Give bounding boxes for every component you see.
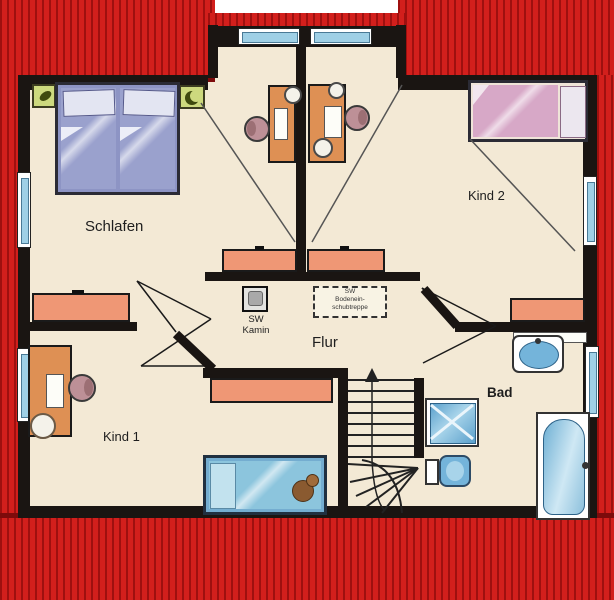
room-label-bad: Bad xyxy=(487,385,513,400)
wall-stairs-right xyxy=(414,378,424,458)
chimney-label-line1: SW xyxy=(248,314,263,325)
wall-bad-top xyxy=(455,322,597,332)
basin-tap xyxy=(535,338,541,344)
office-chair xyxy=(68,374,96,402)
office-chair xyxy=(244,116,270,142)
wall-flur-top xyxy=(205,272,420,281)
room-label-kind2: Kind 2 xyxy=(468,188,505,203)
attic-hatch-line1: SW xyxy=(345,288,355,295)
lamp-symbol-cut xyxy=(190,90,202,102)
desk-paper xyxy=(324,106,342,138)
single-bed-kind1 xyxy=(203,455,327,515)
room-label-kind1: Kind 1 xyxy=(103,429,140,444)
desk-paper xyxy=(274,108,288,140)
pillow xyxy=(63,89,116,117)
chimney-flue xyxy=(248,291,263,306)
roof-left-strip xyxy=(0,75,18,518)
room-label-flur: Flur xyxy=(312,334,338,351)
pillow xyxy=(123,89,176,117)
toilet xyxy=(425,459,439,485)
blanket-fold xyxy=(473,85,489,105)
sideboard xyxy=(510,298,585,322)
window-kind2-right xyxy=(583,176,597,246)
shower-tray xyxy=(430,403,476,444)
pillow xyxy=(560,86,586,138)
washbasin xyxy=(512,335,564,373)
blanket-fold xyxy=(120,127,142,141)
attic-hatch-line3: schubtreppe xyxy=(332,304,368,311)
wall-outer-left xyxy=(18,75,30,518)
sideboard xyxy=(222,249,297,272)
roof-top-right xyxy=(398,0,614,82)
desk-lamp xyxy=(313,138,333,158)
room-label-schlafen: Schlafen xyxy=(85,218,143,235)
roof-right-strip xyxy=(597,75,614,518)
tub-tap xyxy=(582,462,589,469)
chimney-label: SW Kamin xyxy=(233,315,279,337)
stool xyxy=(30,413,56,439)
chimney-label-line2: Kamin xyxy=(243,325,270,336)
shower xyxy=(425,398,479,447)
window-bad-right xyxy=(585,346,599,418)
tub-basin xyxy=(543,419,585,515)
floor-plan: Schlafen Kind 2 SW Kamin SW Bodenein- sc… xyxy=(0,0,614,600)
sideboard-handle xyxy=(72,290,84,294)
office-chair xyxy=(344,105,370,131)
roof-top-left xyxy=(0,0,215,82)
attic-hatch: SW Bodenein- schubtreppe xyxy=(313,286,387,318)
window-dormer-kind2 xyxy=(310,28,372,45)
desk-lamp xyxy=(284,86,302,104)
attic-hatch-line2: Bodenein- xyxy=(335,296,365,303)
wall-stairs-left xyxy=(338,368,348,518)
nightstand-icon xyxy=(32,84,56,108)
toilet-bowl xyxy=(439,455,471,487)
dormer-floor xyxy=(218,45,396,78)
double-bed xyxy=(55,82,180,195)
roof-ridge-dormer xyxy=(208,13,406,26)
teddy-bear-icon xyxy=(306,474,319,487)
sideboard-handle xyxy=(340,246,349,250)
window-dormer-schlafen xyxy=(238,28,300,45)
desk-lamp xyxy=(328,82,345,99)
basin-bowl xyxy=(519,341,559,369)
lamp-symbol xyxy=(38,89,53,103)
wall-center-vertical xyxy=(296,43,306,281)
window-schlafen-left xyxy=(17,172,31,248)
bathtub xyxy=(536,412,590,520)
pillow xyxy=(210,463,236,509)
sideboard xyxy=(307,249,385,272)
desk-paper xyxy=(46,374,64,408)
nightstand-icon xyxy=(179,85,205,109)
wall-kind1-top xyxy=(203,368,348,378)
single-bed-kind2 xyxy=(468,80,588,142)
wall-schlafen-bottom xyxy=(18,322,137,331)
toilet-seat xyxy=(446,461,464,481)
chimney-symbol xyxy=(242,286,268,312)
sideboard-handle xyxy=(255,246,264,250)
sideboard xyxy=(210,378,333,403)
sideboard xyxy=(32,293,130,322)
roof-bottom xyxy=(0,513,614,600)
blanket-fold xyxy=(61,127,83,141)
